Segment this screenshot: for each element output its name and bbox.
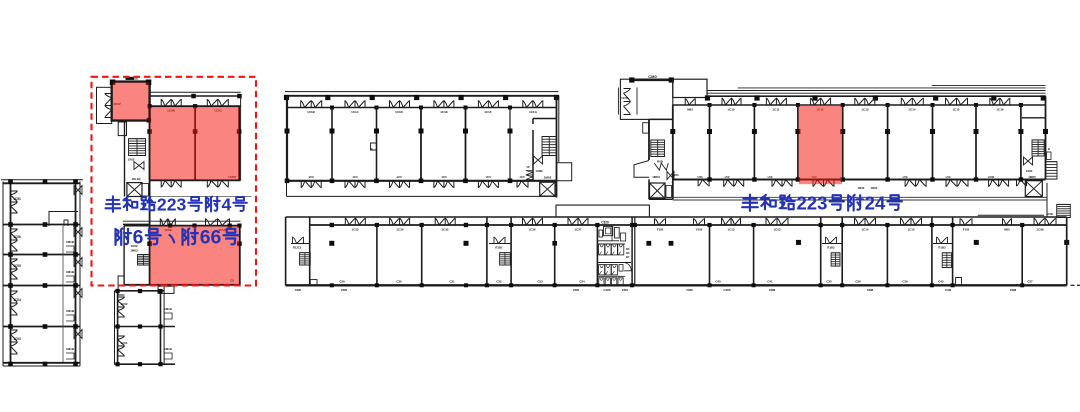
svg-text:1C1F: 1C1F — [484, 110, 492, 114]
svg-text:1C51: 1C51 — [13, 197, 21, 201]
svg-text:1C1D: 1C1D — [395, 110, 404, 114]
svg-text:1X03: 1X03 — [1026, 169, 1033, 173]
svg-text:CM1: CM1 — [622, 288, 629, 292]
svg-text:1C36: 1C36 — [529, 228, 536, 232]
svg-text:1C1C: 1C1C — [351, 110, 360, 114]
svg-text:1C14: 1C14 — [908, 108, 916, 112]
svg-text:B7: B7 — [626, 255, 630, 259]
svg-text:B: B — [1048, 147, 1050, 151]
svg-text:L50: L50 — [768, 175, 773, 179]
svg-text:R1B2: R1B2 — [827, 246, 835, 250]
svg-text:1M1B: 1M1B — [164, 347, 172, 351]
svg-text:1C0: 1C0 — [441, 175, 447, 179]
svg-text:F103: F103 — [963, 228, 970, 232]
svg-text:C40: C40 — [715, 280, 721, 284]
svg-text:C29: C29 — [339, 280, 345, 284]
svg-text:1C0: 1C0 — [396, 175, 402, 179]
svg-text:CM5: CM5 — [341, 288, 348, 292]
svg-text:1C0: 1C0 — [352, 175, 358, 179]
svg-text:1C03: 1C03 — [774, 228, 781, 232]
svg-text:F: F — [371, 147, 373, 151]
svg-text:1C06: 1C06 — [13, 235, 21, 239]
svg-text:2: 2 — [157, 194, 167, 214]
svg-text:M50: M50 — [1004, 228, 1010, 232]
svg-text:L53: L53 — [946, 175, 951, 179]
svg-text:1C02: 1C02 — [120, 302, 128, 306]
svg-text:CM8: CM8 — [769, 288, 776, 292]
svg-text:1C1B: 1C1B — [307, 110, 316, 114]
svg-text:R1213: R1213 — [293, 246, 302, 250]
svg-text:B6: B6 — [626, 251, 630, 255]
svg-text:L500: L500 — [988, 175, 995, 179]
svg-text:1C1G: 1C1G — [529, 110, 538, 114]
svg-text:1M1B: 1M1B — [164, 307, 172, 311]
svg-text:1C99: 1C99 — [1037, 228, 1044, 232]
svg-text:1C15: 1C15 — [952, 108, 960, 112]
svg-text:1C37: 1C37 — [575, 228, 582, 232]
svg-text:6: 6 — [200, 227, 211, 249]
svg-text:6: 6 — [133, 227, 144, 249]
svg-text:U50: U50 — [697, 175, 703, 179]
svg-text:1C0: 1C0 — [519, 175, 525, 179]
svg-text:M03: M03 — [687, 108, 693, 112]
svg-text:L50: L50 — [725, 175, 730, 179]
svg-text:1C: 1C — [526, 165, 530, 169]
svg-text:C45: C45 — [938, 280, 944, 284]
svg-text:4: 4 — [875, 192, 886, 213]
svg-text:4: 4 — [221, 194, 231, 214]
svg-text:1B50: 1B50 — [871, 186, 878, 190]
svg-text:1X0B: 1X0B — [535, 169, 542, 173]
svg-text:1M-1B: 1M-1B — [131, 177, 141, 181]
svg-text:1C11: 1C11 — [772, 108, 779, 112]
svg-text:CM0: CM0 — [648, 74, 657, 79]
svg-text:1C01: 1C01 — [120, 341, 128, 345]
svg-text:C32: C32 — [496, 280, 502, 284]
svg-text:1C14: 1C14 — [862, 228, 869, 232]
svg-text:1C16: 1C16 — [996, 108, 1004, 112]
svg-text:1M1B: 1M1B — [66, 309, 75, 313]
svg-text:1C13: 1C13 — [728, 228, 735, 232]
svg-text:1C13: 1C13 — [861, 108, 869, 112]
svg-text:1C1E: 1C1E — [440, 110, 448, 114]
svg-text:C33: C33 — [537, 280, 543, 284]
svg-text:CM9: CM9 — [686, 288, 693, 292]
svg-text:C37: C37 — [1027, 280, 1033, 284]
svg-text:6: 6 — [211, 227, 222, 249]
svg-text:C39: C39 — [902, 280, 908, 284]
svg-text:CM5: CM5 — [295, 288, 302, 292]
svg-text:B03: B03 — [674, 173, 679, 177]
svg-text:C41: C41 — [767, 280, 773, 284]
svg-text:1B50: 1B50 — [858, 186, 865, 190]
svg-text:C326: C326 — [603, 288, 611, 292]
svg-text:C300: C300 — [723, 288, 731, 292]
svg-text:R1B3: R1B3 — [938, 246, 946, 250]
svg-text:1C0: 1C0 — [485, 175, 491, 179]
svg-text:2: 2 — [796, 192, 806, 213]
svg-text:L50: L50 — [903, 175, 908, 179]
svg-text:F100: F100 — [657, 228, 664, 232]
svg-text:C31: C31 — [449, 280, 455, 284]
svg-text:R1B1: R1B1 — [495, 246, 503, 250]
svg-text:2: 2 — [167, 194, 177, 214]
svg-text:C320: C320 — [601, 221, 609, 225]
svg-text:V100: V100 — [696, 228, 703, 232]
svg-text:C35: C35 — [826, 280, 832, 284]
svg-text:CM5: CM5 — [573, 288, 580, 292]
svg-text:CM8: CM8 — [867, 288, 874, 292]
svg-text:R4B: R4B — [657, 160, 663, 164]
svg-text:3: 3 — [176, 194, 186, 214]
svg-text:C3B: C3B — [945, 288, 952, 292]
svg-text:1C10: 1C10 — [727, 108, 735, 112]
svg-text:1M02: 1M02 — [544, 176, 552, 180]
svg-text:1C05: 1C05 — [13, 264, 21, 268]
svg-text:C34: C34 — [579, 280, 585, 284]
svg-text:1M02: 1M02 — [130, 249, 138, 253]
svg-text:1M1B: 1M1B — [66, 347, 75, 351]
svg-text:1C0A: 1C0A — [621, 96, 630, 100]
svg-text:1M05: 1M05 — [1028, 175, 1036, 179]
svg-text:A5B: A5B — [1047, 212, 1053, 216]
svg-text:1C35: 1C35 — [442, 228, 449, 232]
svg-text:1C0: 1C0 — [308, 175, 314, 179]
svg-text:1C03: 1C03 — [13, 337, 21, 341]
svg-text:2: 2 — [865, 192, 875, 213]
svg-text:3: 3 — [817, 192, 827, 213]
svg-text:1C15: 1C15 — [908, 228, 915, 232]
svg-text:1M1B: 1M1B — [66, 240, 75, 244]
svg-text:B5: B5 — [626, 247, 630, 251]
svg-text:CM8: CM8 — [1010, 288, 1017, 292]
svg-text:2: 2 — [807, 192, 817, 213]
svg-text:1C34: 1C34 — [397, 228, 404, 232]
svg-text:1C04: 1C04 — [13, 298, 21, 302]
svg-text:1M1B: 1M1B — [66, 270, 75, 274]
svg-text:1M03: 1M03 — [652, 175, 660, 179]
svg-text:C38: C38 — [855, 280, 861, 284]
svg-text:C30: C30 — [396, 280, 402, 284]
svg-text:1C33: 1C33 — [352, 228, 359, 232]
